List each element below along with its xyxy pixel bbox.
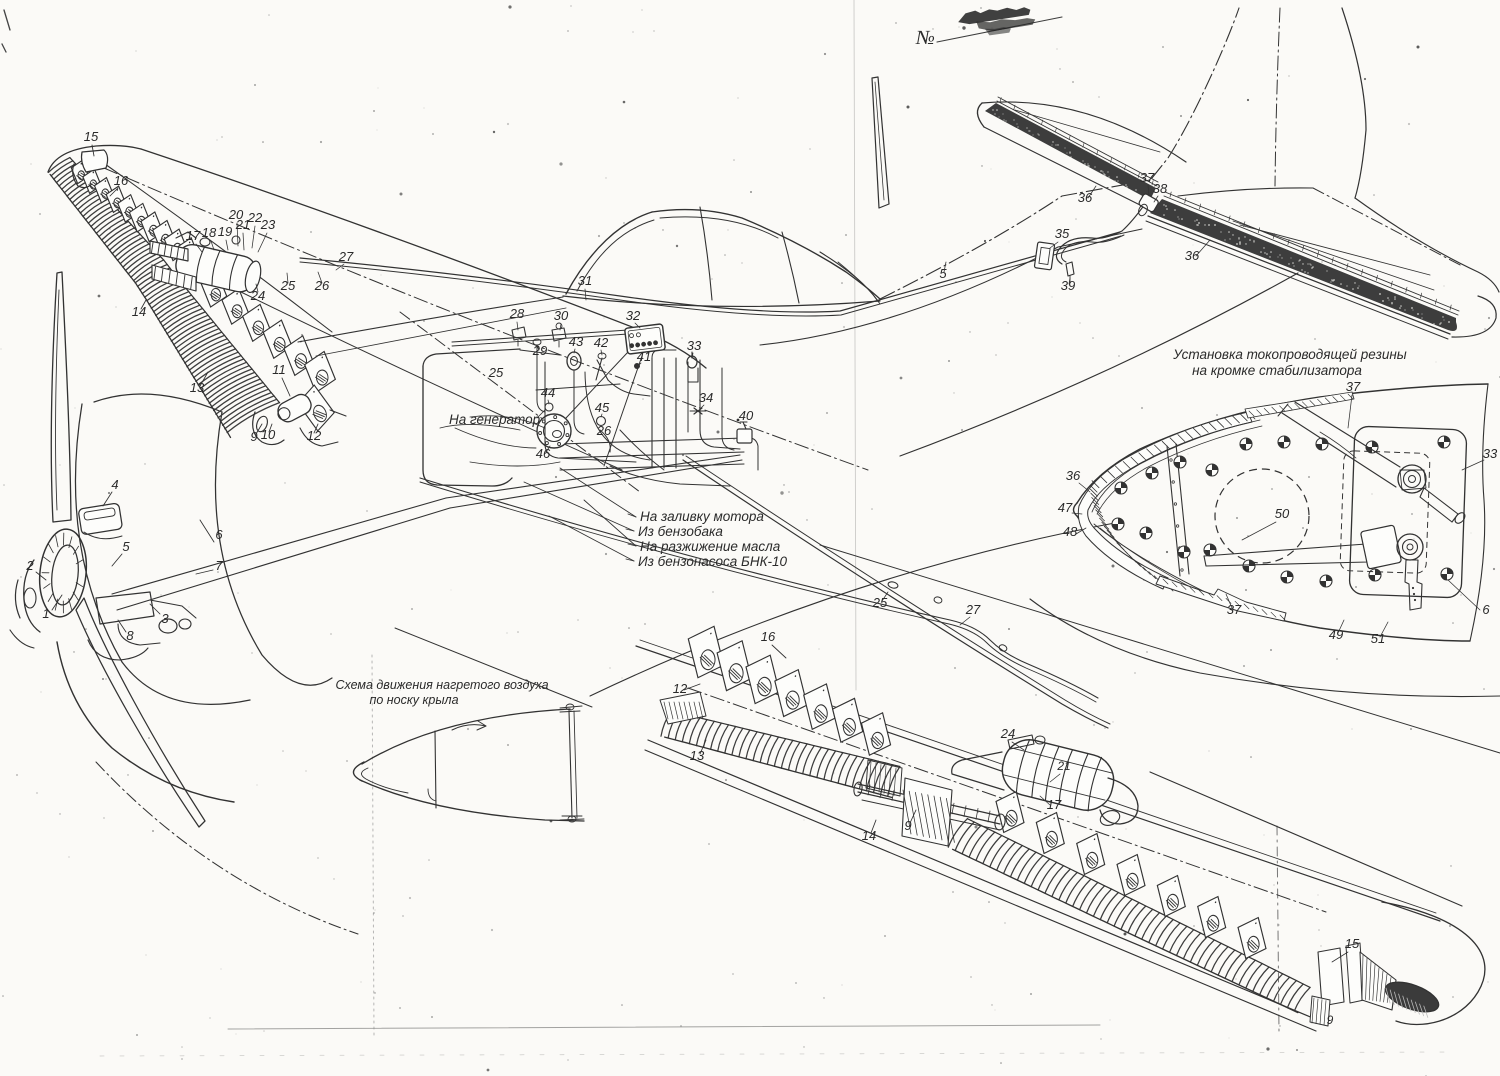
svg-text:10: 10 <box>261 427 276 442</box>
svg-text:3: 3 <box>161 611 169 626</box>
svg-text:6: 6 <box>215 527 223 542</box>
svg-text:26: 26 <box>314 278 330 293</box>
svg-text:на кромке стабилизатора: на кромке стабилизатора <box>1192 363 1362 378</box>
svg-text:№: № <box>915 27 935 49</box>
svg-text:44: 44 <box>541 385 555 400</box>
svg-text:34: 34 <box>699 390 713 405</box>
svg-text:29: 29 <box>532 343 547 358</box>
svg-text:9: 9 <box>904 818 911 833</box>
svg-text:23: 23 <box>260 217 276 232</box>
svg-text:6: 6 <box>1482 602 1490 617</box>
svg-text:36: 36 <box>1066 468 1081 483</box>
svg-text:32: 32 <box>626 308 641 323</box>
svg-text:19: 19 <box>218 224 232 239</box>
svg-text:48: 48 <box>1063 524 1078 539</box>
svg-text:28: 28 <box>509 306 525 321</box>
svg-text:24: 24 <box>1000 726 1015 741</box>
svg-text:Из бензобака: Из бензобака <box>638 524 723 539</box>
svg-text:13: 13 <box>190 380 205 395</box>
svg-text:25: 25 <box>488 365 504 380</box>
svg-text:5: 5 <box>122 539 130 554</box>
svg-text:51: 51 <box>1371 631 1385 646</box>
svg-text:15: 15 <box>84 129 99 144</box>
svg-text:8: 8 <box>126 628 134 643</box>
svg-text:16: 16 <box>761 629 776 644</box>
svg-text:50: 50 <box>1275 506 1290 521</box>
svg-text:15: 15 <box>1345 936 1360 951</box>
svg-text:Схема движения нагретого во: Схема движения нагретого воздуха <box>335 678 548 692</box>
svg-text:18: 18 <box>202 225 217 240</box>
svg-text:31: 31 <box>578 273 592 288</box>
svg-text:47: 47 <box>1058 500 1073 515</box>
svg-text:43: 43 <box>569 334 584 349</box>
svg-text:39: 39 <box>1061 278 1075 293</box>
svg-text:36: 36 <box>1185 248 1200 263</box>
svg-text:2: 2 <box>25 558 34 573</box>
svg-text:9: 9 <box>1327 1013 1334 1027</box>
svg-text:35: 35 <box>1055 226 1070 241</box>
svg-text:33: 33 <box>1483 446 1498 461</box>
svg-text:36: 36 <box>1078 190 1093 205</box>
svg-text:9: 9 <box>250 429 257 444</box>
svg-text:13: 13 <box>690 748 705 763</box>
svg-text:38: 38 <box>1153 181 1168 196</box>
svg-text:4: 4 <box>111 477 118 492</box>
svg-text:49: 49 <box>1329 627 1343 642</box>
svg-text:17: 17 <box>186 228 201 243</box>
svg-text:33: 33 <box>687 338 702 353</box>
svg-text:5: 5 <box>939 266 947 281</box>
svg-text:40: 40 <box>739 408 754 423</box>
svg-text:по носку крыла: по носку крыла <box>369 693 458 707</box>
svg-text:37: 37 <box>1227 602 1242 617</box>
svg-text:21: 21 <box>1056 759 1070 773</box>
svg-text:14: 14 <box>862 828 876 843</box>
svg-text:На заливку мотора: На заливку мотора <box>640 509 764 524</box>
svg-text:45: 45 <box>595 400 610 415</box>
svg-text:11: 11 <box>272 362 286 377</box>
svg-text:37: 37 <box>1346 379 1361 394</box>
svg-text:27: 27 <box>965 602 981 617</box>
svg-text:41: 41 <box>637 349 651 364</box>
svg-text:12: 12 <box>673 681 688 696</box>
svg-text:30: 30 <box>554 308 569 323</box>
svg-text:Установка токопроводящей рез: Установка токопроводящей резины <box>1172 347 1406 362</box>
svg-text:25: 25 <box>872 595 888 610</box>
svg-text:12: 12 <box>307 428 322 443</box>
svg-text:На генератор: На генератор <box>449 412 541 427</box>
svg-text:1: 1 <box>42 606 49 621</box>
svg-text:42: 42 <box>594 335 609 350</box>
svg-text:14: 14 <box>132 304 146 319</box>
svg-text:16: 16 <box>114 173 129 188</box>
svg-text:7: 7 <box>215 558 223 573</box>
svg-text:26: 26 <box>596 423 612 438</box>
